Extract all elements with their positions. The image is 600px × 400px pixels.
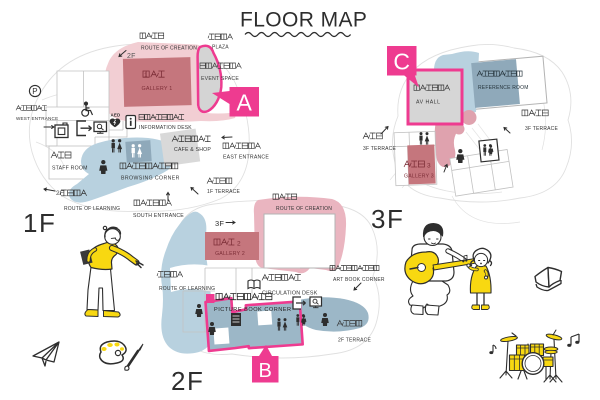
svg-text:ROUTE OF CREATION: ROUTE OF CREATION	[276, 206, 332, 212]
svg-text:ROUTE OF LEARNING: ROUTE OF LEARNING	[64, 206, 120, 212]
svg-text:3F TERRACE: 3F TERRACE	[525, 126, 558, 132]
svg-text:B: B	[259, 360, 273, 382]
svg-text:SOUTH ENTRANCE: SOUTH ENTRANCE	[133, 213, 184, 219]
svg-text:GALLERY 2: GALLERY 2	[215, 251, 245, 257]
svg-text:WEST ENTRANCE: WEST ENTRANCE	[16, 116, 58, 121]
svg-text:1: 1	[144, 72, 148, 79]
svg-text:ROUTE OF CREATION: ROUTE OF CREATION	[141, 46, 197, 52]
svg-text:PLAZA: PLAZA	[212, 45, 229, 51]
svg-text:P: P	[32, 87, 38, 96]
svg-text:2F: 2F	[171, 366, 204, 396]
svg-text:FLOOR MAP: FLOOR MAP	[240, 9, 367, 32]
svg-text:PICTURE BOOK CORNER: PICTURE BOOK CORNER	[214, 307, 292, 313]
svg-text:STAFF ROOM: STAFF ROOM	[52, 166, 88, 172]
svg-text:2: 2	[237, 241, 241, 248]
svg-text:2F TERRACE: 2F TERRACE	[338, 338, 371, 344]
svg-text:1F TERRACE: 1F TERRACE	[207, 189, 240, 195]
svg-text:GALLERY 3: GALLERY 3	[404, 174, 434, 180]
svg-text:CAFE & SHOP: CAFE & SHOP	[174, 147, 211, 153]
svg-text:INFORMATION DESK: INFORMATION DESK	[139, 125, 192, 131]
svg-text:AED: AED	[111, 113, 121, 118]
svg-text:3F: 3F	[215, 219, 224, 228]
svg-text:2F: 2F	[127, 53, 136, 60]
svg-text:BROWSING CORNER: BROWSING CORNER	[121, 176, 180, 182]
svg-text:GALLERY 1: GALLERY 1	[142, 86, 173, 92]
svg-text:REFERENCE ROOM: REFERENCE ROOM	[478, 85, 529, 91]
svg-text:ROUTE OF LEARNING: ROUTE OF LEARNING	[159, 286, 215, 292]
svg-text:C: C	[393, 49, 410, 75]
svg-text:EAST ENTRANCE: EAST ENTRANCE	[223, 155, 269, 161]
svg-text:ART BOOK CORNER: ART BOOK CORNER	[333, 277, 385, 283]
svg-text:A: A	[237, 90, 253, 116]
svg-text:EVENT SPACE: EVENT SPACE	[201, 76, 239, 82]
svg-text:3: 3	[427, 163, 431, 170]
svg-text:1F: 1F	[23, 208, 56, 238]
svg-text:AV HALL: AV HALL	[416, 100, 440, 106]
svg-text:3F TERRACE: 3F TERRACE	[363, 146, 396, 152]
svg-text:3F: 3F	[371, 204, 404, 234]
